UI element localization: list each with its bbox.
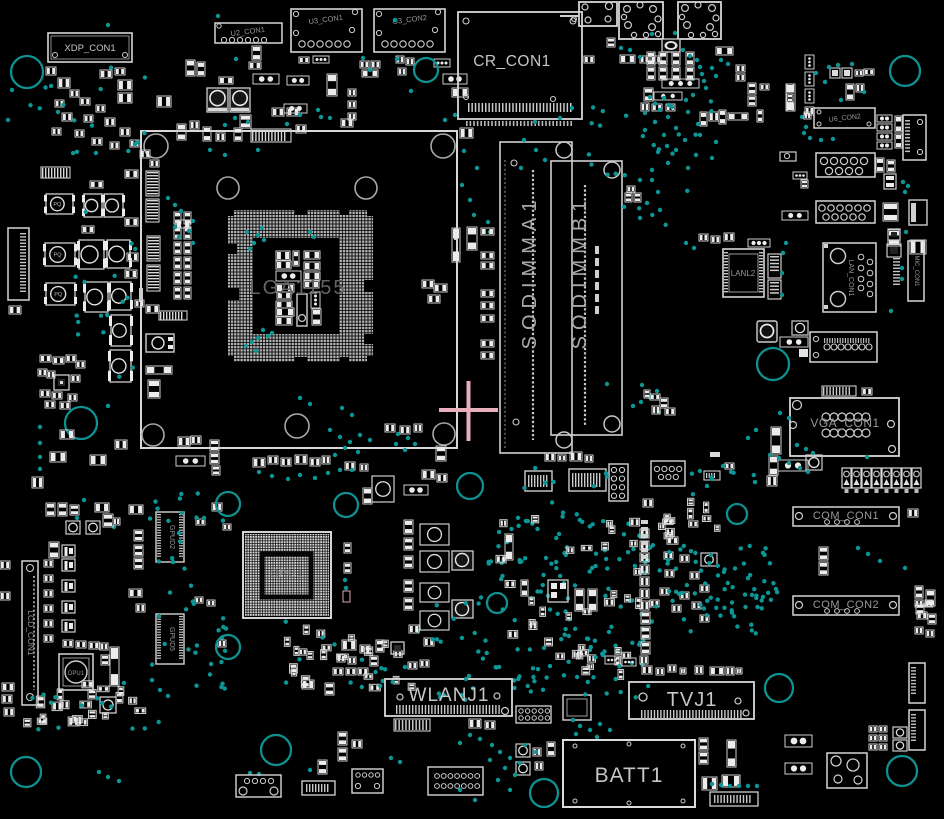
svg-text:LCD_CON1: LCD_CON1 (26, 610, 36, 656)
svg-text:SODIMMB1: SODIMMB1 (569, 195, 591, 350)
svg-text:XDP_CON1: XDP_CON1 (64, 43, 115, 54)
svg-text:PQ: PQ (54, 253, 63, 259)
svg-text:LANL2: LANL2 (731, 269, 756, 278)
svg-text:VGA_CON1: VGA_CON1 (810, 416, 879, 430)
svg-text:GPU1: GPU1 (270, 568, 304, 580)
svg-text:CR_CON1: CR_CON1 (473, 53, 551, 70)
svg-text:GPUD2: GPUD2 (168, 525, 175, 549)
svg-text:BATT1: BATT1 (595, 764, 664, 787)
svg-text:SODIMMA1: SODIMMA1 (519, 195, 541, 350)
svg-text:DPU1: DPU1 (68, 671, 85, 677)
svg-text:PQ: PQ (53, 202, 62, 208)
svg-text:LGA1155: LGA1155 (249, 277, 346, 299)
svg-text:MIC_CON1: MIC_CON1 (913, 255, 919, 287)
svg-text:GPUD5: GPUD5 (168, 627, 175, 651)
svg-text:TVJ1: TVJ1 (667, 689, 718, 711)
svg-text:WLANJ1: WLANJ1 (409, 685, 490, 706)
svg-text:LAN_CON1: LAN_CON1 (847, 260, 854, 297)
svg-text:PQ: PQ (54, 292, 63, 298)
